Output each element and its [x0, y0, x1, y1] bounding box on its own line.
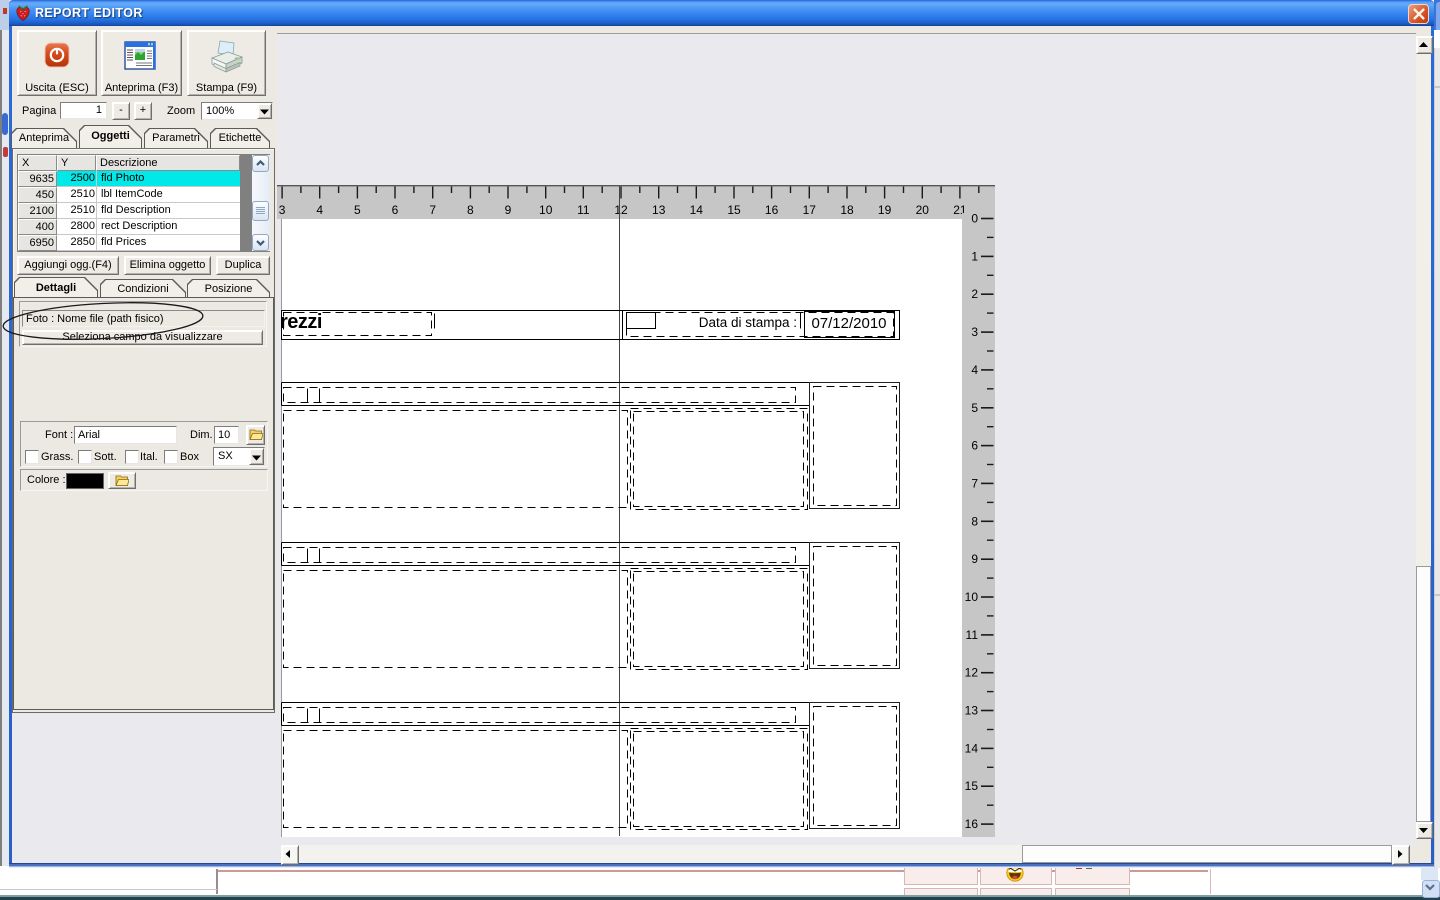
svg-text:20: 20 — [916, 203, 930, 217]
svg-text:17: 17 — [803, 203, 817, 217]
svg-text:8: 8 — [971, 514, 978, 528]
svg-text:16: 16 — [765, 203, 779, 217]
svg-text:14: 14 — [965, 741, 979, 755]
svg-text:11: 11 — [966, 628, 979, 642]
svg-text:16: 16 — [965, 817, 979, 831]
svg-text:19: 19 — [878, 203, 892, 217]
svg-text:9: 9 — [505, 203, 512, 217]
svg-text:12: 12 — [965, 666, 979, 680]
svg-text:14: 14 — [690, 203, 704, 217]
svg-text:3: 3 — [279, 203, 286, 217]
svg-text:7: 7 — [971, 476, 978, 490]
svg-text:15: 15 — [965, 779, 979, 793]
svg-text:5: 5 — [971, 401, 978, 415]
svg-text:15: 15 — [727, 203, 741, 217]
svg-text:7: 7 — [429, 203, 436, 217]
svg-text:5: 5 — [354, 203, 361, 217]
svg-text:3: 3 — [971, 325, 978, 339]
svg-text:2: 2 — [971, 287, 978, 301]
svg-text:8: 8 — [467, 203, 474, 217]
svg-text:1: 1 — [971, 249, 978, 263]
svg-text:4: 4 — [971, 363, 978, 377]
svg-text:11: 11 — [577, 203, 590, 217]
svg-text:12: 12 — [614, 203, 628, 217]
svg-text:10: 10 — [539, 203, 553, 217]
svg-text:4: 4 — [316, 203, 323, 217]
svg-text:13: 13 — [965, 704, 979, 718]
svg-text:13: 13 — [652, 203, 666, 217]
svg-text:6: 6 — [392, 203, 399, 217]
svg-text:10: 10 — [965, 590, 979, 604]
svg-text:9: 9 — [971, 552, 978, 566]
svg-text:0: 0 — [971, 213, 978, 226]
svg-text:18: 18 — [840, 203, 854, 217]
svg-text:6: 6 — [971, 439, 978, 453]
